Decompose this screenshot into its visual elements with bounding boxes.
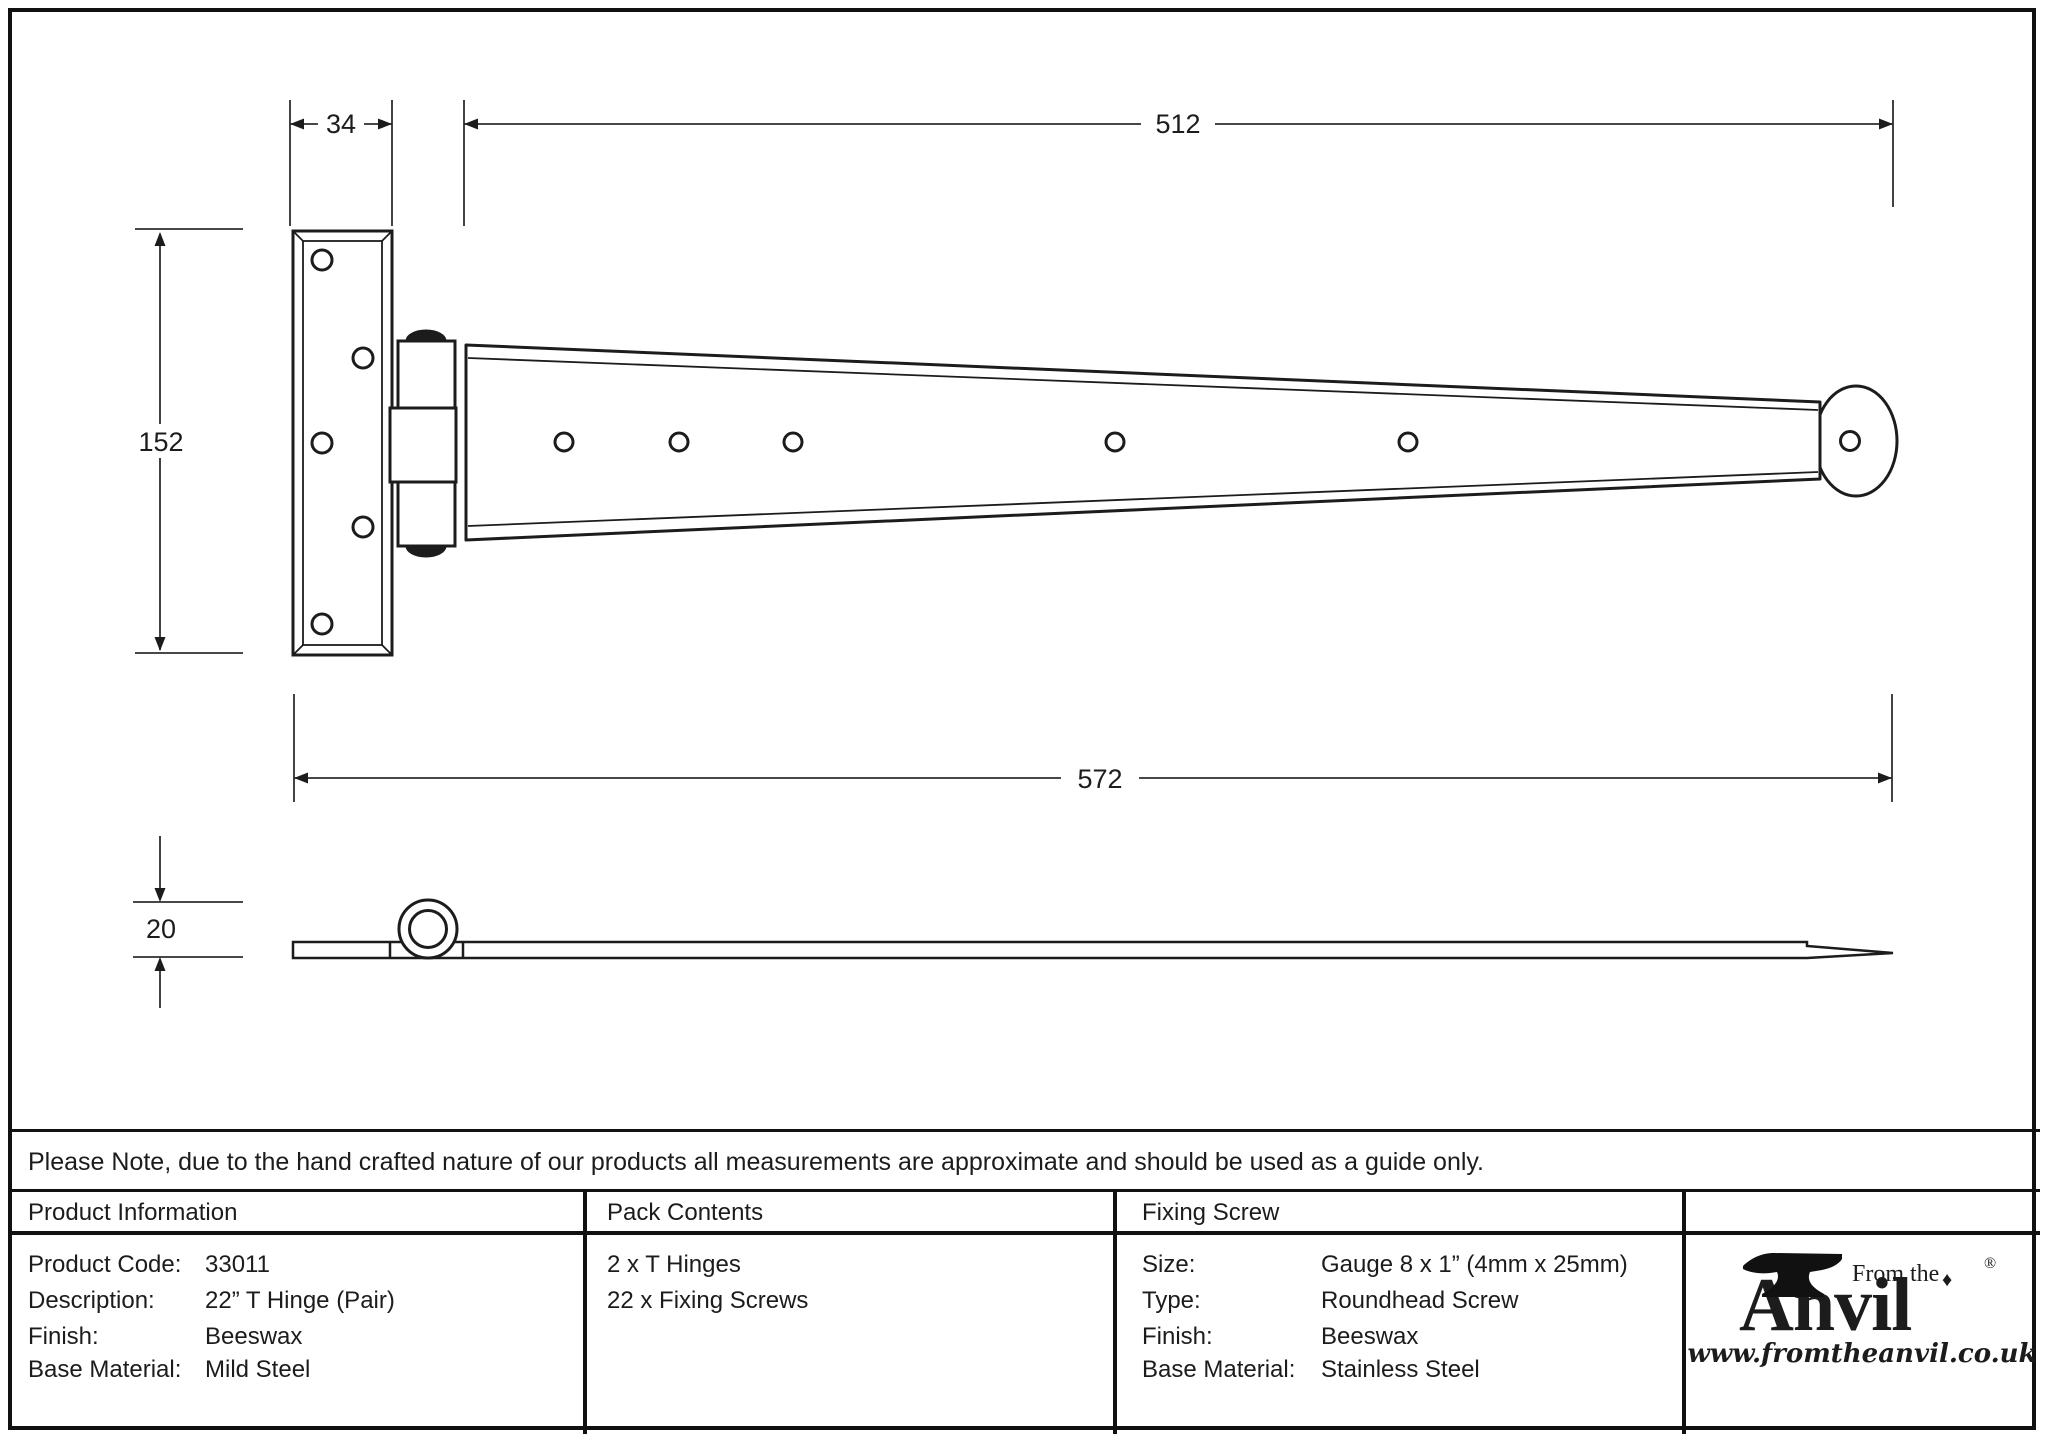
page-border — [8, 8, 2036, 1430]
pack-item-2: 22 x Fixing Screws — [607, 1287, 808, 1315]
finish-label: Finish: — [28, 1323, 99, 1351]
screw-base-material-value: Stainless Steel — [1321, 1356, 1480, 1384]
screw-base-material-label: Base Material: — [1142, 1356, 1295, 1384]
anvil-icon — [1742, 1253, 1844, 1297]
header-pack-contents: Pack Contents — [607, 1199, 763, 1227]
screw-finish-label: Finish: — [1142, 1323, 1213, 1351]
column-divider-1 — [583, 1189, 587, 1434]
column-divider-2 — [1113, 1189, 1117, 1434]
screw-finish-value: Beeswax — [1321, 1323, 1418, 1351]
brand-prefix: From the — [1852, 1261, 1939, 1288]
header-row-top-border — [8, 1189, 2040, 1192]
registered-mark: ® — [1984, 1255, 1996, 1273]
brand-url: www.fromtheanvil.co.uk — [1684, 1339, 2040, 1369]
base-material-label: Base Material: — [28, 1356, 181, 1384]
base-material-value: Mild Steel — [205, 1356, 310, 1384]
spec-sheet-page: 34 512 152 572 20 Please Note, due to th… — [0, 0, 2048, 1440]
description-label: Description: — [28, 1287, 155, 1315]
pack-item-1: 2 x T Hinges — [607, 1251, 741, 1279]
screw-type-value: Roundhead Screw — [1321, 1287, 1518, 1315]
diamond-icon: ♦ — [1942, 1269, 1952, 1292]
description-value: 22” T Hinge (Pair) — [205, 1287, 395, 1315]
header-fixing-screw: Fixing Screw — [1142, 1199, 1279, 1227]
product-code-label: Product Code: — [28, 1251, 181, 1279]
note-row-top-border — [8, 1129, 2040, 1132]
measurement-note: Please Note, due to the hand crafted nat… — [28, 1148, 1484, 1177]
header-product-information: Product Information — [28, 1199, 237, 1227]
product-code-value: 33011 — [205, 1251, 270, 1279]
finish-value: Beeswax — [205, 1323, 302, 1351]
screw-size-value: Gauge 8 x 1” (4mm x 25mm) — [1321, 1251, 1628, 1279]
brand-logo: Anvil From the ♦ ® www.fromtheanvil.co.u… — [1684, 1233, 2040, 1432]
screw-size-label: Size: — [1142, 1251, 1195, 1279]
screw-type-label: Type: — [1142, 1287, 1201, 1315]
